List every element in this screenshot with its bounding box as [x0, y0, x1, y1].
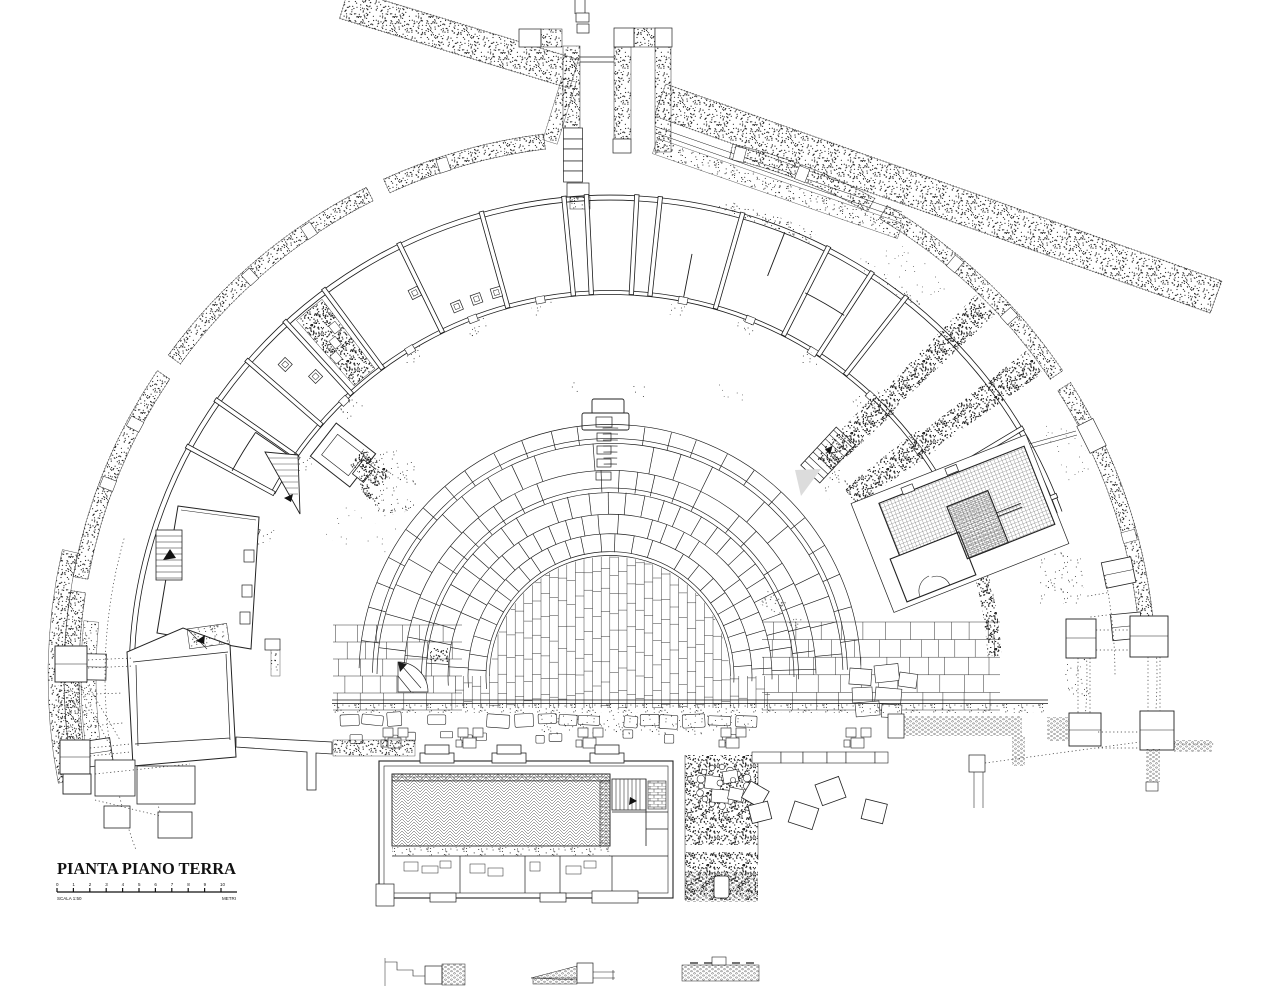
svg-text:SCALA 1:50: SCALA 1:50 [57, 896, 82, 901]
svg-text:METRI: METRI [222, 896, 236, 901]
svg-text:PIANTA PIANO TERRA: PIANTA PIANO TERRA [57, 859, 237, 878]
svg-text:10: 10 [220, 882, 226, 887]
